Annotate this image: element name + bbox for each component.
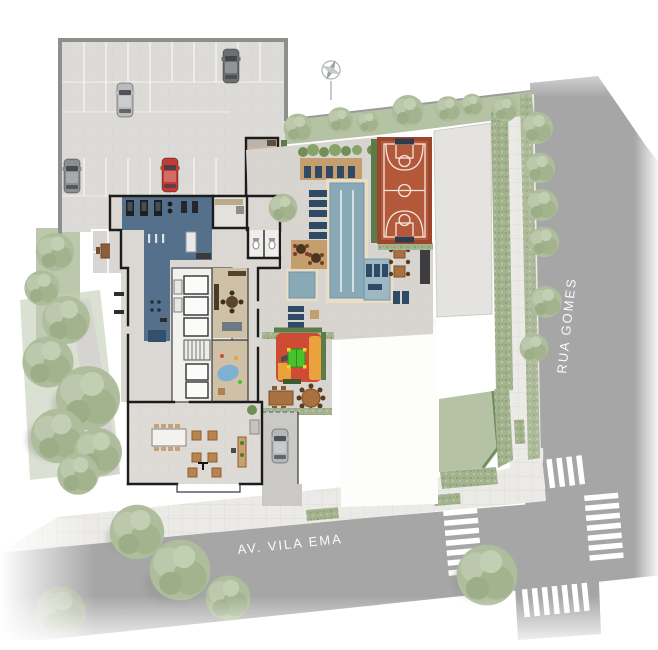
- sun-deck-top: [300, 164, 362, 180]
- neighbor-concrete-lot: [434, 123, 492, 317]
- deck-tables-west: [291, 240, 327, 269]
- car-gray: [63, 159, 82, 193]
- car-lobby-silver: [271, 429, 290, 463]
- north-arrow-icon: [320, 59, 342, 100]
- lounge-room: [212, 268, 248, 338]
- white-neighbor-lot: [339, 319, 438, 507]
- basketball-court: [377, 137, 432, 244]
- restrooms: [248, 230, 280, 258]
- kids-playroom: [212, 340, 248, 402]
- car-red: [161, 158, 180, 192]
- playground: [274, 330, 324, 384]
- kids-pool: [286, 269, 318, 301]
- site-plan: AV. VILA EMA RUA GOMES: [0, 0, 658, 650]
- stairs: [184, 340, 210, 360]
- court-hedge-west: [371, 139, 377, 243]
- site-plan-canvas: AV. VILA EMA RUA GOMES: [0, 0, 658, 650]
- court-bench-south: [395, 237, 414, 243]
- car-dark-gray: [222, 49, 241, 83]
- car-silver: [116, 83, 135, 117]
- playground-bench: [283, 379, 301, 384]
- court-bench-north: [395, 139, 414, 145]
- court-hedge-south: [378, 244, 433, 250]
- playhouse: [287, 348, 307, 369]
- pantry-room: [213, 197, 247, 228]
